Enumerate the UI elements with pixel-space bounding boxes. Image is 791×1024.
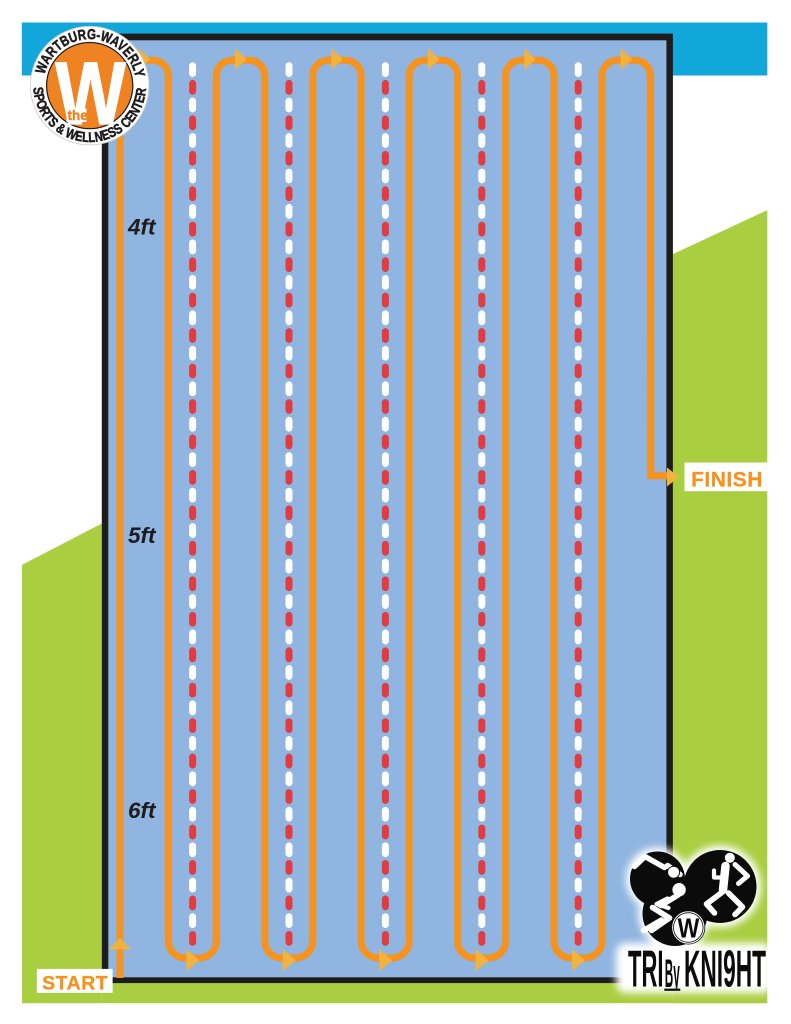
svg-text:TRI: TRI [628,941,664,999]
svg-text:the: the [68,108,89,123]
svg-text:W: W [678,913,700,944]
svg-text:6ft: 6ft [128,798,157,823]
svg-text:4ft: 4ft [127,215,157,240]
svg-text:KNI9HT: KNI9HT [684,941,766,999]
svg-text:FINISH: FINISH [691,468,763,491]
svg-text:W: W [55,45,126,144]
svg-text:START: START [42,973,108,995]
svg-text:5ft: 5ft [128,523,157,548]
